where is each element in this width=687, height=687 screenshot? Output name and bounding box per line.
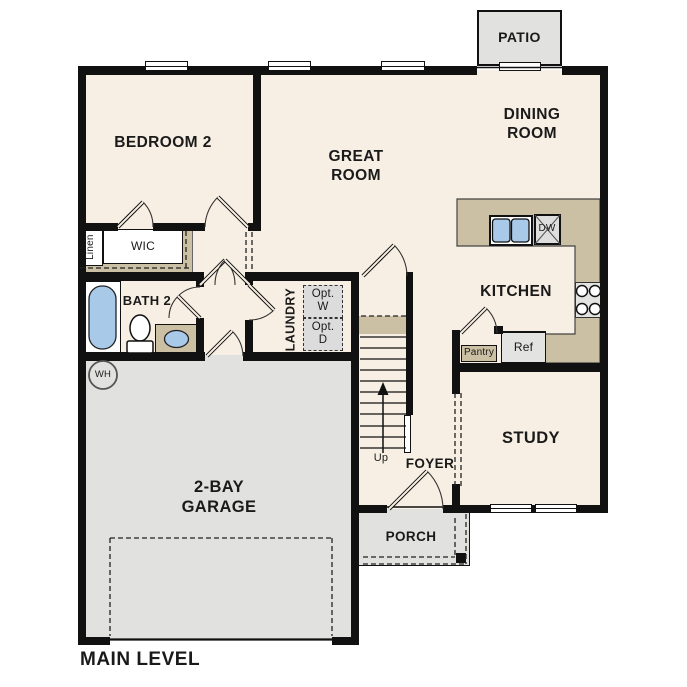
wic-label: WIC (113, 239, 173, 254)
floor-plan: PATIO BEDROOM 2 GREAT ROOM DINING ROOM K… (0, 0, 687, 687)
opt-washer-label: Opt. W (303, 288, 343, 314)
porch-label: PORCH (366, 529, 456, 545)
plan-title: MAIN LEVEL (80, 648, 280, 671)
wall (452, 363, 608, 372)
wall (600, 66, 608, 513)
porch-post (456, 553, 466, 563)
wall (332, 637, 359, 645)
wall (494, 326, 503, 334)
kitchen-sink-box (489, 215, 533, 246)
up-label: Up (366, 452, 396, 465)
window (381, 61, 425, 71)
wall (351, 272, 359, 637)
wall (245, 272, 253, 285)
wall (196, 318, 204, 354)
wall (196, 272, 204, 287)
stair-landing-strip (359, 316, 406, 334)
wall (452, 372, 460, 394)
kitchen-label: KITCHEN (446, 283, 586, 302)
wall (253, 272, 359, 281)
wall (253, 66, 261, 231)
wall (248, 223, 261, 231)
linen-label: Linen (85, 227, 97, 267)
pantry-label: Pantry (461, 347, 497, 359)
wall (78, 272, 204, 281)
wall (452, 330, 460, 363)
wall (243, 352, 359, 361)
wall (78, 352, 205, 361)
opt-dryer-label: Opt. D (303, 321, 343, 347)
water-heater-label: WH (88, 369, 118, 381)
great-room-label: GREAT ROOM (296, 148, 416, 186)
patio-label: PATIO (477, 29, 562, 46)
wall (245, 320, 253, 361)
bath2-label: BATH 2 (116, 293, 178, 309)
wall (406, 272, 413, 415)
window (268, 61, 311, 71)
bedroom2-label: BEDROOM 2 (88, 134, 238, 153)
dining-room-label: DINING ROOM (472, 106, 592, 144)
window (535, 504, 577, 513)
wall (452, 484, 460, 505)
laundry-label: LAUNDRY (283, 280, 298, 360)
garage-label: 2-BAY GARAGE (149, 477, 289, 517)
window (145, 61, 188, 71)
bath-sink-counter (155, 324, 198, 354)
window (490, 504, 532, 513)
wall (78, 637, 110, 645)
study-label: STUDY (471, 428, 591, 448)
refrigerator-label: Ref (501, 340, 546, 355)
foyer-label: FOYER (390, 456, 470, 472)
stair-railing (404, 415, 411, 453)
bathtub-surround (84, 281, 121, 354)
patio-sliding-door (499, 62, 541, 71)
wall (153, 223, 205, 231)
dishwasher-label: DW (532, 223, 562, 235)
